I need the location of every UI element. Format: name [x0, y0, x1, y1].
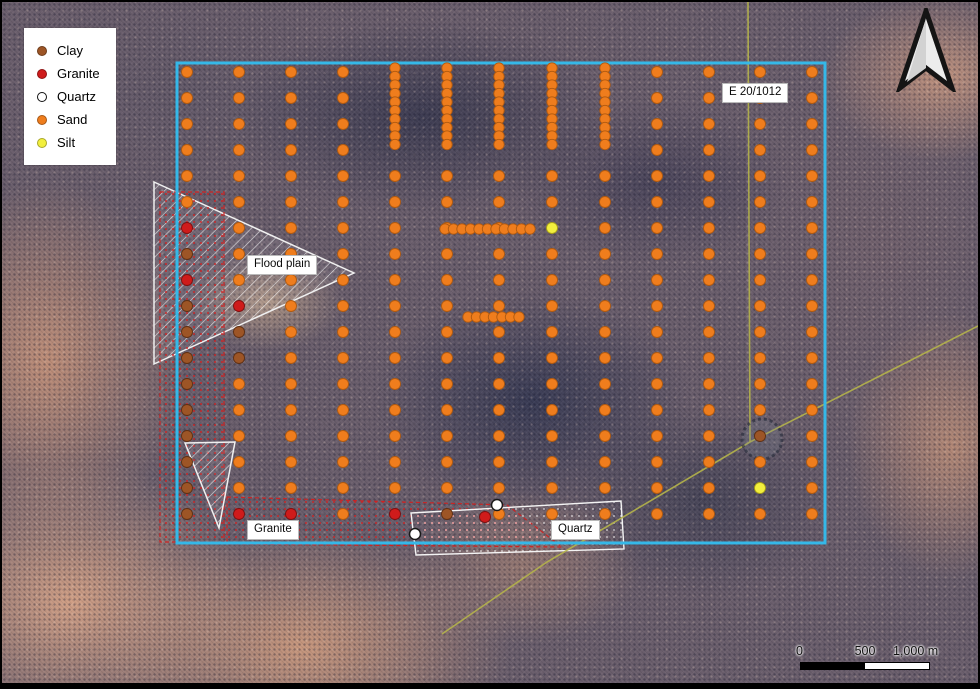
sample-point-sand	[652, 197, 663, 208]
sample-point-sand	[704, 353, 715, 364]
geology-zones	[154, 182, 624, 555]
sample-point-clay	[182, 483, 193, 494]
sample-point-sand	[652, 145, 663, 156]
north-arrow-icon	[895, 8, 957, 92]
sample-point-silt	[755, 483, 766, 494]
sample-point-sand	[807, 145, 818, 156]
sample-point-sand	[234, 119, 245, 130]
map-label-flood-plain: Flood plain	[247, 255, 317, 275]
sample-point-sand	[547, 509, 558, 520]
sample-point-sand	[704, 93, 715, 104]
sample-point-sand	[390, 275, 401, 286]
sample-point-sand	[494, 405, 505, 416]
sample-point-sand	[547, 379, 558, 390]
sample-point-sand	[704, 405, 715, 416]
sample-point-sand	[182, 197, 193, 208]
sample-point-sand	[547, 405, 558, 416]
sample-point-sand	[390, 327, 401, 338]
sample-point-sand	[234, 405, 245, 416]
sample-point-sand	[600, 223, 611, 234]
scale-label-1000m: 1,000 m	[893, 644, 938, 658]
sample-point-sand	[652, 223, 663, 234]
sample-point-sand	[652, 301, 663, 312]
sample-point-sand	[286, 405, 297, 416]
legend-item-sand: Sand	[37, 108, 100, 131]
legend-swatch-sand	[37, 115, 47, 125]
sample-point-clay	[182, 249, 193, 260]
sample-point-sand	[807, 301, 818, 312]
sample-point-sand	[390, 379, 401, 390]
sample-point-quartz	[492, 500, 503, 511]
sample-point-sand	[704, 145, 715, 156]
sample-point-sand	[755, 457, 766, 468]
sample-point-sand	[494, 249, 505, 260]
sample-point-sand	[442, 405, 453, 416]
sample-point-sand	[286, 119, 297, 130]
sample-point-sand	[286, 353, 297, 364]
sample-point-sand	[338, 197, 349, 208]
sample-point-sand	[652, 457, 663, 468]
sample-point-sand	[600, 431, 611, 442]
sample-point-sand	[234, 197, 245, 208]
sample-point-sand	[286, 327, 297, 338]
sample-point-sand	[182, 119, 193, 130]
sample-point-sand	[442, 139, 452, 149]
sample-point-sand	[286, 67, 297, 78]
sample-point-sand	[514, 312, 524, 322]
sample-point-sand	[652, 483, 663, 494]
sample-point-sand	[704, 275, 715, 286]
sample-point-sand	[652, 327, 663, 338]
scale-label-0: 0	[796, 644, 803, 658]
sample-point-sand	[652, 379, 663, 390]
sample-point-sand	[807, 457, 818, 468]
sample-point-clay	[182, 509, 193, 520]
sample-point-sand	[494, 301, 505, 312]
sample-point-sand	[494, 197, 505, 208]
sample-point-sand	[652, 67, 663, 78]
sample-point-sand	[600, 171, 611, 182]
sample-point-sand	[652, 431, 663, 442]
sample-point-clay	[182, 327, 193, 338]
sample-point-sand	[338, 93, 349, 104]
sample-point-sand	[494, 379, 505, 390]
sample-point-sand	[234, 457, 245, 468]
sample-point-sand	[286, 171, 297, 182]
sample-point-sand	[390, 483, 401, 494]
sample-point-sand	[494, 275, 505, 286]
sample-point-sand	[704, 431, 715, 442]
sample-point-sand	[390, 301, 401, 312]
sample-point-clay	[442, 509, 453, 520]
sample-point-sand	[442, 379, 453, 390]
legend: ClayGraniteQuartzSandSilt	[24, 28, 116, 165]
sample-point-sand	[600, 301, 611, 312]
sample-point-sand	[807, 483, 818, 494]
sample-point-clay	[234, 327, 245, 338]
sample-point-sand	[755, 405, 766, 416]
sample-point-sand	[600, 139, 610, 149]
legend-label-sand: Sand	[57, 113, 87, 126]
sample-point-sand	[442, 457, 453, 468]
sample-point-sand	[390, 457, 401, 468]
sample-point-sand	[286, 93, 297, 104]
legend-swatch-quartz	[37, 92, 47, 102]
sample-point-sand	[234, 145, 245, 156]
sample-point-sand	[442, 301, 453, 312]
sample-point-sand	[600, 483, 611, 494]
sample-point-sand	[600, 197, 611, 208]
sample-point-sand	[338, 145, 349, 156]
sample-point-sand	[807, 197, 818, 208]
sample-point-sand	[547, 431, 558, 442]
sample-point-sand	[390, 223, 401, 234]
sample-point-sand	[182, 67, 193, 78]
sample-point-sand	[338, 457, 349, 468]
sample-point-sand	[442, 197, 453, 208]
sample-point-sand	[755, 171, 766, 182]
sample-point-sand	[390, 171, 401, 182]
sample-point-sand	[286, 223, 297, 234]
sample-point-sand	[442, 327, 453, 338]
sample-point-sand	[704, 509, 715, 520]
sample-point-sand	[494, 457, 505, 468]
sample-point-sand	[286, 197, 297, 208]
sample-point-granite	[480, 512, 491, 523]
sample-point-sand	[807, 275, 818, 286]
sample-point-silt	[547, 223, 558, 234]
sample-point-granite	[286, 509, 297, 520]
sample-point-sand	[704, 301, 715, 312]
sample-point-sand	[338, 483, 349, 494]
sample-point-sand	[286, 145, 297, 156]
sample-point-sand	[807, 379, 818, 390]
sample-point-sand	[182, 93, 193, 104]
sample-point-sand	[390, 431, 401, 442]
sample-point-sand	[286, 379, 297, 390]
sample-point-sand	[807, 353, 818, 364]
sample-point-sand	[525, 224, 535, 234]
sample-point-sand	[755, 197, 766, 208]
sample-point-sand	[234, 171, 245, 182]
sample-point-sand	[442, 431, 453, 442]
sample-point-sand	[547, 483, 558, 494]
sample-point-clay	[234, 353, 245, 364]
sample-point-sand	[547, 171, 558, 182]
legend-item-granite: Granite	[37, 62, 100, 85]
sample-point-sand	[600, 457, 611, 468]
sample-point-sand	[807, 171, 818, 182]
sample-point-sand	[494, 171, 505, 182]
sample-point-granite	[234, 509, 245, 520]
sample-point-sand	[338, 171, 349, 182]
sample-point-sand	[704, 327, 715, 338]
sample-point-sand	[652, 93, 663, 104]
sample-point-sand	[704, 249, 715, 260]
sample-point-sand	[652, 405, 663, 416]
sample-point-sand	[234, 249, 245, 260]
sample-point-sand	[547, 197, 558, 208]
sample-point-sand	[755, 327, 766, 338]
sample-point-clay	[182, 353, 193, 364]
sample-point-sand	[704, 379, 715, 390]
map-label-tenement-id: E 20/1012	[722, 83, 788, 103]
sample-point-sand	[494, 353, 505, 364]
sample-point-sand	[755, 379, 766, 390]
sample-point-clay	[182, 301, 193, 312]
sample-point-sand	[234, 93, 245, 104]
sample-point-sand	[600, 249, 611, 260]
sample-point-sand	[286, 431, 297, 442]
sample-point-sand	[600, 405, 611, 416]
sample-point-sand	[755, 145, 766, 156]
sample-point-sand	[755, 509, 766, 520]
sample-point-quartz	[410, 529, 421, 540]
sample-point-sand	[338, 223, 349, 234]
sample-point-granite	[182, 223, 193, 234]
legend-swatch-granite	[37, 69, 47, 79]
sample-point-sand	[807, 327, 818, 338]
sample-point-sand	[338, 379, 349, 390]
sample-point-clay	[755, 431, 766, 442]
legend-label-quartz: Quartz	[57, 90, 96, 103]
legend-item-quartz: Quartz	[37, 85, 100, 108]
sample-point-sand	[704, 119, 715, 130]
sample-point-sand	[338, 249, 349, 260]
legend-swatch-clay	[37, 46, 47, 56]
sample-point-sand	[547, 249, 558, 260]
map-container: ClayGraniteQuartzSandSilt Flood plainGra…	[0, 0, 980, 689]
sample-point-granite	[390, 509, 401, 520]
sample-point-sand	[600, 275, 611, 286]
sample-point-sand	[494, 139, 504, 149]
sample-point-sand	[807, 431, 818, 442]
sample-point-sand	[338, 327, 349, 338]
sample-point-sand	[234, 67, 245, 78]
sample-point-sand	[755, 119, 766, 130]
sample-point-sand	[234, 223, 245, 234]
sample-point-sand	[807, 249, 818, 260]
sample-point-sand	[494, 431, 505, 442]
sample-point-sand	[442, 249, 453, 260]
sample-point-sand	[652, 119, 663, 130]
sample-point-sand	[442, 483, 453, 494]
sample-point-sand	[600, 327, 611, 338]
sample-point-sand	[807, 119, 818, 130]
sample-point-sand	[338, 275, 349, 286]
sample-point-sand	[338, 509, 349, 520]
sample-point-sand	[390, 405, 401, 416]
sample-point-sand	[494, 327, 505, 338]
sample-point-sand	[338, 431, 349, 442]
sample-point-sand	[652, 249, 663, 260]
map-overlay-layer	[2, 2, 980, 689]
sample-point-sand	[755, 353, 766, 364]
sample-point-sand	[704, 223, 715, 234]
map-label-quartz-zone: Quartz	[551, 520, 600, 540]
sample-point-sand	[704, 197, 715, 208]
sample-point-sand	[704, 483, 715, 494]
sample-point-granite	[182, 275, 193, 286]
sample-point-sand	[234, 379, 245, 390]
sample-point-sand	[234, 431, 245, 442]
sample-point-clay	[182, 457, 193, 468]
sample-point-sand	[547, 301, 558, 312]
sample-point-sand	[442, 353, 453, 364]
sample-point-sand	[547, 457, 558, 468]
sample-point-sand	[547, 139, 557, 149]
sample-point-sand	[390, 139, 400, 149]
sample-point-sand	[704, 67, 715, 78]
legend-item-silt: Silt	[37, 131, 100, 154]
sample-point-sand	[600, 509, 611, 520]
sample-point-sand	[234, 275, 245, 286]
sample-point-sand	[234, 483, 245, 494]
sample-point-sand	[807, 223, 818, 234]
scale-bar: 0 500 1,000 m	[800, 644, 930, 676]
sample-point-clay	[182, 405, 193, 416]
sample-point-sand	[755, 249, 766, 260]
sample-point-sand	[338, 353, 349, 364]
sample-point-sand	[600, 353, 611, 364]
legend-label-clay: Clay	[57, 44, 83, 57]
sample-point-sand	[286, 457, 297, 468]
scale-bar-track	[800, 662, 930, 670]
sample-point-sand	[652, 353, 663, 364]
sample-point-sand	[755, 275, 766, 286]
sample-point-sand	[494, 483, 505, 494]
sample-point-sand	[755, 67, 766, 78]
legend-items: ClayGraniteQuartzSandSilt	[37, 39, 100, 154]
sample-point-sand	[652, 275, 663, 286]
scale-label-500: 500	[855, 644, 876, 658]
sample-point-sand	[652, 509, 663, 520]
sample-point-sand	[442, 275, 453, 286]
sample-point-sand	[390, 197, 401, 208]
sample-point-sand	[547, 353, 558, 364]
legend-item-clay: Clay	[37, 39, 100, 62]
sample-point-sand	[704, 171, 715, 182]
sample-point-sand	[704, 457, 715, 468]
sample-point-sand	[338, 301, 349, 312]
legend-label-granite: Granite	[57, 67, 100, 80]
sample-point-sand	[390, 353, 401, 364]
sample-point-sand	[807, 93, 818, 104]
sample-point-sand	[338, 67, 349, 78]
sample-point-sand	[807, 405, 818, 416]
legend-swatch-silt	[37, 138, 47, 148]
legend-label-silt: Silt	[57, 136, 75, 149]
sample-point-clay	[182, 431, 193, 442]
sample-point-sand	[390, 249, 401, 260]
sample-point-granite	[234, 301, 245, 312]
sample-point-sand	[807, 67, 818, 78]
sample-point-sand	[755, 223, 766, 234]
map-label-granite-zone: Granite	[247, 520, 299, 540]
sample-point-sand	[286, 275, 297, 286]
sample-point-sand	[807, 509, 818, 520]
sample-point-sand	[338, 119, 349, 130]
sample-point-clay	[182, 379, 193, 390]
sample-point-sand	[286, 483, 297, 494]
sample-point-sand	[182, 145, 193, 156]
sample-point-sand	[600, 379, 611, 390]
sample-point-sand	[442, 171, 453, 182]
sample-point-sand	[338, 405, 349, 416]
sample-point-sand	[755, 301, 766, 312]
sample-point-sand	[286, 301, 297, 312]
sample-point-sand	[547, 327, 558, 338]
sample-point-sand	[182, 171, 193, 182]
sample-point-sand	[652, 171, 663, 182]
sample-point-sand	[547, 275, 558, 286]
